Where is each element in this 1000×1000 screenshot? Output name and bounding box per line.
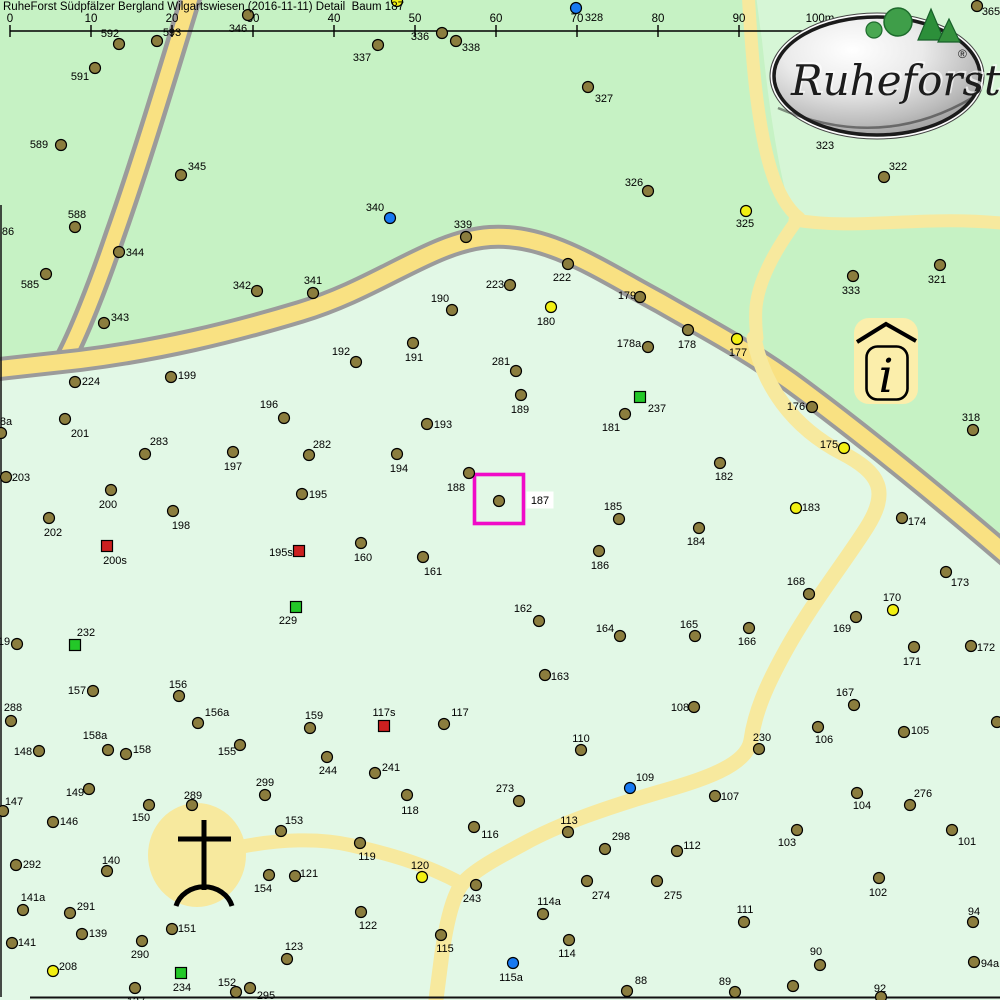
tree-label-181: 181 bbox=[602, 422, 620, 434]
tree-label-137: 137 bbox=[127, 996, 145, 1000]
tree-marker-102[interactable] bbox=[874, 873, 885, 884]
tree-label-116: 116 bbox=[481, 829, 499, 841]
tree-label-115a: 115a bbox=[499, 972, 524, 984]
tree-label-192: 192 bbox=[332, 346, 350, 358]
tree-label-154: 154 bbox=[254, 883, 272, 895]
tree-marker-339[interactable] bbox=[461, 232, 472, 243]
tree-label-182: 182 bbox=[715, 471, 733, 483]
tree-label-112: 112 bbox=[683, 840, 701, 852]
tree-label-327: 327 bbox=[595, 93, 613, 105]
tree-label-365: 365 bbox=[982, 6, 1000, 18]
tree-label-283: 283 bbox=[150, 436, 168, 448]
tree-marker-170[interactable] bbox=[888, 605, 899, 616]
tree-label-194: 194 bbox=[390, 463, 408, 475]
tree-marker-288[interactable] bbox=[6, 716, 17, 727]
tree-label-281: 281 bbox=[492, 356, 510, 368]
tree-marker-588[interactable] bbox=[70, 222, 81, 233]
tree-marker-182[interactable] bbox=[715, 458, 726, 469]
tree-label-172: 172 bbox=[977, 642, 995, 654]
tree-marker-223[interactable] bbox=[505, 280, 516, 291]
tree-marker-174[interactable] bbox=[897, 513, 908, 524]
tree-label-150: 150 bbox=[132, 812, 150, 824]
tree-marker-117[interactable] bbox=[439, 719, 450, 730]
tree-marker-137[interactable] bbox=[130, 983, 141, 994]
tree-marker-326[interactable] bbox=[643, 186, 654, 197]
tree-marker-322[interactable] bbox=[879, 172, 890, 183]
tree-label-92: 92 bbox=[874, 983, 886, 995]
tree-marker-196[interactable] bbox=[279, 413, 290, 424]
tree-label-298: 298 bbox=[612, 831, 630, 843]
info-icon-glyph: i bbox=[878, 349, 893, 404]
tree-marker-203[interactable] bbox=[1, 472, 12, 483]
tree-marker-177[interactable] bbox=[732, 334, 743, 345]
tree-marker-153[interactable] bbox=[276, 826, 287, 837]
tree-label-203: 203 bbox=[12, 472, 30, 484]
tree-label-140: 140 bbox=[102, 855, 120, 867]
tree-label-166: 166 bbox=[738, 636, 756, 648]
tree-label-113: 113 bbox=[560, 815, 578, 827]
tree-marker-229[interactable] bbox=[291, 602, 302, 613]
ruler-label: 10 bbox=[85, 13, 98, 25]
tree-marker-114[interactable] bbox=[564, 935, 575, 946]
tree-marker-282[interactable] bbox=[304, 450, 315, 461]
map-title: RuheForst Südpfälzer Bergland Wilgartswi… bbox=[3, 1, 404, 13]
tree-marker-195[interactable] bbox=[297, 489, 308, 500]
tree-label-117: 117 bbox=[451, 707, 469, 719]
tree-label-109: 109 bbox=[636, 772, 654, 784]
tree-label-299: 299 bbox=[256, 777, 274, 789]
tree-marker-276[interactable] bbox=[905, 800, 916, 811]
tree-label-326: 326 bbox=[625, 177, 643, 189]
tree-label-195: 195 bbox=[309, 489, 327, 501]
tree-label-121: 121 bbox=[300, 868, 318, 880]
tree-label-224: 224 bbox=[82, 376, 100, 388]
tree-marker-160[interactable] bbox=[356, 538, 367, 549]
tree-marker-122[interactable] bbox=[356, 907, 367, 918]
tree-marker-337[interactable] bbox=[373, 40, 384, 51]
ruler-label: 70 bbox=[571, 13, 584, 25]
tree-marker-202[interactable] bbox=[44, 513, 55, 524]
tree-marker-161[interactable] bbox=[418, 552, 429, 563]
tree-marker-193[interactable] bbox=[422, 419, 433, 430]
tree-label-149: 149 bbox=[66, 787, 84, 799]
tree-label-160: 160 bbox=[354, 552, 372, 564]
tree-label-146: 146 bbox=[60, 816, 78, 828]
tree-label-345: 345 bbox=[188, 161, 206, 173]
tree-marker-181[interactable] bbox=[620, 409, 631, 420]
tree-marker-151[interactable] bbox=[167, 924, 178, 935]
tree-label-139: 139 bbox=[89, 928, 107, 940]
tree-label-152: 152 bbox=[218, 977, 236, 989]
ruler-label: 40 bbox=[328, 13, 341, 25]
tree-label-188: 188 bbox=[447, 482, 465, 494]
tree-marker-222[interactable] bbox=[563, 259, 574, 270]
tree-marker-89[interactable] bbox=[730, 987, 741, 998]
tree-marker-273[interactable] bbox=[514, 796, 525, 807]
tree-marker-169[interactable] bbox=[851, 612, 862, 623]
tree-label-141: 141 bbox=[18, 937, 36, 949]
tree-label-119: 119 bbox=[358, 851, 376, 863]
tree-marker-141[interactable] bbox=[7, 938, 18, 949]
tree-label-103: 103 bbox=[778, 837, 796, 849]
ruler-label: 20 bbox=[166, 13, 179, 25]
ruler-label: 90 bbox=[733, 13, 746, 25]
tree-marker-234[interactable] bbox=[176, 968, 187, 979]
tree-marker-340[interactable] bbox=[385, 213, 396, 224]
tree-marker-274[interactable] bbox=[582, 876, 593, 887]
tree-marker-118[interactable] bbox=[402, 790, 413, 801]
tree-marker-593[interactable] bbox=[152, 36, 163, 47]
tree-label-123: 123 bbox=[285, 941, 303, 953]
tree-marker-120[interactable] bbox=[417, 872, 428, 883]
tree-label-193: 193 bbox=[434, 419, 452, 431]
tree-marker-117s[interactable] bbox=[379, 721, 390, 732]
tree-label-167: 167 bbox=[836, 687, 854, 699]
tree-marker-94[interactable] bbox=[968, 917, 979, 928]
tree-marker-103[interactable] bbox=[792, 825, 803, 836]
tree-marker-188[interactable] bbox=[464, 468, 475, 479]
tree-label-170: 170 bbox=[883, 592, 901, 604]
tree-label-274: 274 bbox=[592, 890, 610, 902]
tree-marker-194[interactable] bbox=[392, 449, 403, 460]
tree-marker-8a[interactable] bbox=[0, 428, 7, 439]
tree-label-202: 202 bbox=[44, 527, 62, 539]
tree-label-244: 244 bbox=[319, 765, 337, 777]
tree-label-588: 588 bbox=[68, 209, 86, 221]
tree-marker-156[interactable] bbox=[174, 691, 185, 702]
tree-marker-185[interactable] bbox=[614, 514, 625, 525]
tree-marker-157[interactable] bbox=[88, 686, 99, 697]
tree-marker-150[interactable] bbox=[144, 800, 155, 811]
tree-label-159: 159 bbox=[305, 710, 323, 722]
tree-marker-172[interactable] bbox=[966, 641, 977, 652]
tree-label-341: 341 bbox=[304, 275, 322, 287]
tree-label-589: 589 bbox=[30, 139, 48, 151]
tree-marker-200[interactable] bbox=[106, 485, 117, 496]
tree-label-155: 155 bbox=[218, 746, 236, 758]
tree-label-86: 86 bbox=[2, 226, 14, 238]
tree-label-223: 223 bbox=[486, 279, 504, 291]
tree-marker-344[interactable] bbox=[114, 247, 125, 258]
tree-marker-341[interactable] bbox=[308, 288, 319, 299]
tree-marker-298[interactable] bbox=[600, 844, 611, 855]
tree-label-178: 178 bbox=[678, 339, 696, 351]
tree-marker-187[interactable] bbox=[494, 496, 505, 507]
tree-label-157: 157 bbox=[68, 685, 86, 697]
tree-label-162: 162 bbox=[514, 603, 532, 615]
tree-label-107: 107 bbox=[721, 791, 739, 803]
tree-label-593: 593 bbox=[163, 27, 181, 39]
tree-label-101: 101 bbox=[958, 836, 976, 848]
tree-label-164: 164 bbox=[596, 623, 614, 635]
tree-marker-154[interactable] bbox=[264, 870, 275, 881]
tree-marker-230[interactable] bbox=[754, 744, 765, 755]
tree-label-340: 340 bbox=[366, 202, 384, 214]
tree-label-102: 102 bbox=[869, 887, 887, 899]
tree-label-189: 189 bbox=[511, 404, 529, 416]
tree-label-234: 234 bbox=[173, 982, 191, 994]
tree-marker-106[interactable] bbox=[813, 722, 824, 733]
tree-marker-345[interactable] bbox=[176, 170, 187, 181]
tree-marker-107[interactable] bbox=[710, 791, 721, 802]
tree-marker-241[interactable] bbox=[370, 768, 381, 779]
tree-marker-108[interactable] bbox=[689, 702, 700, 713]
tree-marker-186[interactable] bbox=[594, 546, 605, 557]
tree-marker-342[interactable] bbox=[252, 286, 263, 297]
ruler-label: 0 bbox=[7, 13, 13, 25]
tree-marker-168[interactable] bbox=[804, 589, 815, 600]
tree-label-106: 106 bbox=[815, 734, 833, 746]
tree-label-19: 19 bbox=[0, 636, 10, 648]
tree-marker-237[interactable] bbox=[635, 392, 646, 403]
tree-label-178a: 178a bbox=[617, 338, 642, 350]
tree-marker-139[interactable] bbox=[77, 929, 88, 940]
tree-label-328: 328 bbox=[585, 12, 603, 24]
tree-marker-19[interactable] bbox=[12, 639, 23, 650]
tree-marker-113[interactable] bbox=[563, 827, 574, 838]
tree-label-168: 168 bbox=[787, 576, 805, 588]
tree-marker-123[interactable] bbox=[282, 954, 293, 965]
tree-label-153: 153 bbox=[285, 815, 303, 827]
tree-marker-110[interactable] bbox=[576, 745, 587, 756]
info-icon[interactable]: i bbox=[854, 318, 918, 404]
tree-label-114a: 114a bbox=[537, 896, 562, 908]
tree-label-282: 282 bbox=[313, 439, 331, 451]
tree-marker-275[interactable] bbox=[652, 876, 663, 887]
tree-label-158: 158 bbox=[133, 744, 151, 756]
tree-marker-291[interactable] bbox=[65, 908, 76, 919]
tree-label-183: 183 bbox=[802, 502, 820, 514]
tree-label-343: 343 bbox=[111, 312, 129, 324]
logo-registered-mark: ® bbox=[958, 47, 967, 61]
tree-marker-116[interactable] bbox=[469, 822, 480, 833]
tree-label-201: 201 bbox=[71, 428, 89, 440]
tree-label-151: 151 bbox=[178, 923, 196, 935]
tree-marker-171[interactable] bbox=[909, 642, 920, 653]
tree-label-591: 591 bbox=[71, 71, 89, 83]
tree-marker-325[interactable] bbox=[741, 206, 752, 217]
tree-marker-299[interactable] bbox=[260, 790, 271, 801]
tree-label-158a: 158a bbox=[83, 730, 108, 742]
tree-label-288: 288 bbox=[4, 702, 22, 714]
tree-marker-232[interactable] bbox=[70, 640, 81, 651]
tree-label-88: 88 bbox=[635, 975, 647, 987]
tree-marker-199[interactable] bbox=[166, 372, 177, 383]
tree-label-185: 185 bbox=[604, 501, 622, 513]
tree-marker-338[interactable] bbox=[451, 36, 462, 47]
tree-marker-244[interactable] bbox=[322, 752, 333, 763]
tree-label-111: 111 bbox=[737, 904, 754, 916]
tree-label-344: 344 bbox=[126, 247, 144, 259]
tree-label-89: 89 bbox=[719, 976, 731, 988]
tree-label-104: 104 bbox=[853, 800, 871, 812]
tree-marker-156a[interactable] bbox=[193, 718, 204, 729]
tree-marker-163[interactable] bbox=[540, 670, 551, 681]
tree-label-276: 276 bbox=[914, 788, 932, 800]
tree-marker-327[interactable] bbox=[583, 82, 594, 93]
tree-marker-173[interactable] bbox=[941, 567, 952, 578]
tree-marker-180[interactable] bbox=[546, 302, 557, 313]
ruler-label: 60 bbox=[490, 13, 503, 25]
tree-marker-101[interactable] bbox=[947, 825, 958, 836]
tree-marker-115a[interactable] bbox=[508, 958, 519, 969]
tree-marker-140[interactable] bbox=[102, 866, 113, 877]
tree-marker-243[interactable] bbox=[471, 880, 482, 891]
tree-marker-159[interactable] bbox=[305, 723, 316, 734]
tree-label-333: 333 bbox=[842, 285, 860, 297]
tree-marker-146[interactable] bbox=[48, 817, 59, 828]
tree-label-198: 198 bbox=[172, 520, 190, 532]
tree-label-230: 230 bbox=[753, 732, 771, 744]
tree-marker-184[interactable] bbox=[694, 523, 705, 534]
tree-label-222: 222 bbox=[553, 272, 571, 284]
tree-label-175: 175 bbox=[820, 439, 838, 451]
tree-marker-175[interactable] bbox=[839, 443, 850, 454]
tree-label-156: 156 bbox=[169, 679, 187, 691]
tree-marker-unlabeled[interactable] bbox=[788, 981, 799, 992]
tree-label-161: 161 bbox=[424, 566, 442, 578]
tree-marker-195s[interactable] bbox=[294, 546, 305, 557]
tree-marker-158[interactable] bbox=[121, 749, 132, 760]
tree-marker-201[interactable] bbox=[60, 414, 71, 425]
tree-label-291: 291 bbox=[77, 901, 95, 913]
tree-label-115: 115 bbox=[436, 943, 454, 955]
tree-label-110: 110 bbox=[572, 733, 590, 745]
tree-label-196: 196 bbox=[260, 399, 278, 411]
tree-marker-178a[interactable] bbox=[643, 342, 654, 353]
tree-marker-318[interactable] bbox=[968, 425, 979, 436]
tree-label-237: 237 bbox=[648, 403, 666, 415]
tree-marker-197[interactable] bbox=[228, 447, 239, 458]
tree-marker-283[interactable] bbox=[140, 449, 151, 460]
map-viewer: 0102030405060708090100m 187 592593346337… bbox=[0, 0, 1000, 1000]
tree-label-105: 105 bbox=[911, 725, 929, 737]
tree-label-337: 337 bbox=[353, 52, 371, 64]
tree-label-199: 199 bbox=[178, 370, 196, 382]
tree-marker-589[interactable] bbox=[56, 140, 67, 151]
tree-marker-90[interactable] bbox=[815, 960, 826, 971]
tree-marker-191[interactable] bbox=[408, 338, 419, 349]
tree-marker-591[interactable] bbox=[90, 63, 101, 74]
tree-marker-112[interactable] bbox=[672, 846, 683, 857]
tree-marker-119[interactable] bbox=[355, 838, 366, 849]
tree-marker-165[interactable] bbox=[690, 631, 701, 642]
tree-marker-178[interactable] bbox=[683, 325, 694, 336]
tree-marker-592[interactable] bbox=[114, 39, 125, 50]
tree-marker-176[interactable] bbox=[807, 402, 818, 413]
tree-marker-292[interactable] bbox=[11, 860, 22, 871]
logo-wordmark: Ruheforst bbox=[790, 56, 1000, 105]
ruler-label: 80 bbox=[652, 13, 665, 25]
tree-marker-295[interactable] bbox=[245, 983, 256, 994]
tree-label-336: 336 bbox=[411, 31, 429, 43]
tree-marker-149[interactable] bbox=[84, 784, 95, 795]
tree-label-156a: 156a bbox=[205, 707, 230, 719]
tree-label-273: 273 bbox=[496, 783, 514, 795]
tree-label-339: 339 bbox=[454, 219, 472, 231]
tree-marker-198[interactable] bbox=[168, 506, 179, 517]
tree-label-338: 338 bbox=[462, 42, 480, 54]
tree-label-174: 174 bbox=[908, 516, 926, 528]
tree-label-290: 290 bbox=[131, 949, 149, 961]
tree-label-90: 90 bbox=[810, 946, 822, 958]
tree-marker-141a[interactable] bbox=[18, 905, 29, 916]
tree-label-108: 108 bbox=[671, 702, 689, 714]
tree-marker-585[interactable] bbox=[41, 269, 52, 280]
tree-label-94a: 94a bbox=[981, 958, 1000, 970]
tree-marker-111[interactable] bbox=[739, 917, 750, 928]
tree-marker-166[interactable] bbox=[744, 623, 755, 634]
tree-label-592: 592 bbox=[101, 28, 119, 40]
tree-marker-343[interactable] bbox=[99, 318, 110, 329]
tree-label-165: 165 bbox=[680, 619, 698, 631]
tree-marker-189[interactable] bbox=[516, 390, 527, 401]
map-canvas[interactable]: 0102030405060708090100m 187 592593346337… bbox=[0, 0, 1000, 1000]
ruler-label: 50 bbox=[409, 13, 422, 25]
tree-label-8a: 8a bbox=[0, 416, 13, 428]
tree-marker-164[interactable] bbox=[615, 631, 626, 642]
tree-marker-94a[interactable] bbox=[969, 957, 980, 968]
tree-marker-167[interactable] bbox=[849, 700, 860, 711]
tree-marker-290[interactable] bbox=[137, 936, 148, 947]
tree-marker-281[interactable] bbox=[511, 366, 522, 377]
tree-label-171: 171 bbox=[903, 656, 921, 668]
memorial-clearing bbox=[148, 803, 246, 907]
tree-marker-224[interactable] bbox=[70, 377, 81, 388]
tree-label-141a: 141a bbox=[21, 892, 46, 904]
tree-label-321: 321 bbox=[928, 274, 946, 286]
tree-marker-328[interactable] bbox=[571, 3, 582, 14]
tree-label-200: 200 bbox=[99, 499, 117, 511]
tree-marker-200s[interactable] bbox=[102, 541, 113, 552]
tree-label-179: 179 bbox=[618, 290, 636, 302]
tree-marker-115[interactable] bbox=[436, 930, 447, 941]
tree-label-346: 346 bbox=[229, 23, 247, 35]
tree-label-190: 190 bbox=[431, 293, 449, 305]
tree-marker-unlabeled[interactable] bbox=[992, 717, 1000, 728]
tree-label-177: 177 bbox=[729, 347, 747, 359]
tree-marker-190[interactable] bbox=[447, 305, 458, 316]
tree-label-114: 114 bbox=[558, 948, 576, 960]
tree-marker-162[interactable] bbox=[534, 616, 545, 627]
tree-marker-183[interactable] bbox=[791, 503, 802, 514]
tree-label-195s: 195s bbox=[269, 547, 293, 559]
tree-marker-114a[interactable] bbox=[538, 909, 549, 920]
tree-marker-158a[interactable] bbox=[103, 745, 114, 756]
tree-marker-208[interactable] bbox=[48, 966, 59, 977]
tree-label-117s: 117s bbox=[372, 707, 396, 719]
tree-label-122: 122 bbox=[359, 920, 377, 932]
tree-marker-192[interactable] bbox=[351, 357, 362, 368]
tree-marker-88[interactable] bbox=[622, 986, 633, 997]
tree-marker-109[interactable] bbox=[625, 783, 636, 794]
tree-label-322: 322 bbox=[889, 161, 907, 173]
tree-label-243: 243 bbox=[463, 893, 481, 905]
tree-marker-148[interactable] bbox=[34, 746, 45, 757]
tree-label-200s: 200s bbox=[103, 555, 127, 567]
tree-label-292: 292 bbox=[23, 859, 41, 871]
tree-label-148: 148 bbox=[14, 746, 32, 758]
tree-marker-105[interactable] bbox=[899, 727, 910, 738]
tree-marker-336[interactable] bbox=[437, 28, 448, 39]
tree-marker-321[interactable] bbox=[935, 260, 946, 271]
tree-label-342: 342 bbox=[233, 280, 251, 292]
tree-label-241: 241 bbox=[382, 762, 400, 774]
tree-marker-333[interactable] bbox=[848, 271, 859, 282]
tree-marker-104[interactable] bbox=[852, 788, 863, 799]
tree-label-229: 229 bbox=[279, 615, 297, 627]
tree-label-275: 275 bbox=[664, 890, 682, 902]
